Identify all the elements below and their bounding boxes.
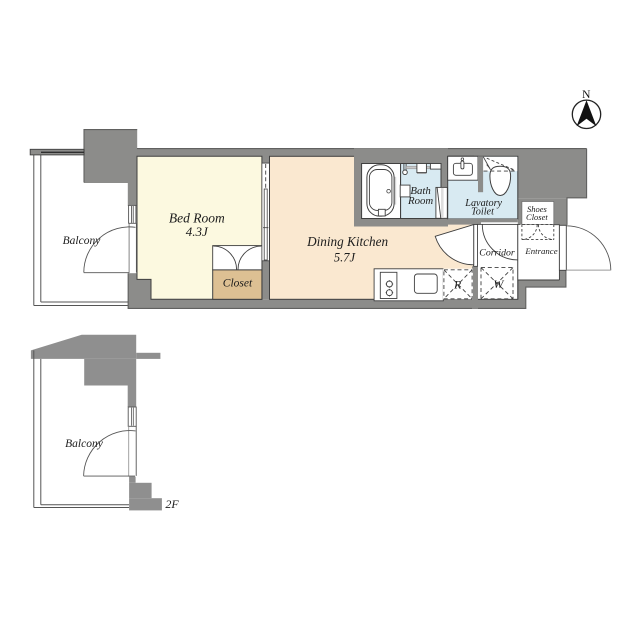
- svg-text:Corridor: Corridor: [479, 247, 515, 258]
- svg-text:5.7J: 5.7J: [334, 250, 357, 264]
- svg-text:4.3J: 4.3J: [186, 224, 209, 239]
- svg-text:Closet: Closet: [223, 278, 253, 290]
- svg-text:2F: 2F: [165, 497, 179, 511]
- svg-text:Room: Room: [407, 195, 433, 207]
- svg-text:W: W: [493, 277, 504, 291]
- svg-text:Balcony: Balcony: [65, 438, 104, 450]
- svg-text:Entrance: Entrance: [524, 246, 557, 256]
- svg-text:Closet: Closet: [526, 212, 548, 222]
- svg-text:N: N: [582, 89, 591, 101]
- svg-text:R: R: [453, 280, 461, 292]
- svg-text:Toilet: Toilet: [471, 207, 495, 218]
- svg-text:Balcony: Balcony: [63, 235, 102, 247]
- svg-text:Dining Kitchen: Dining Kitchen: [306, 234, 388, 249]
